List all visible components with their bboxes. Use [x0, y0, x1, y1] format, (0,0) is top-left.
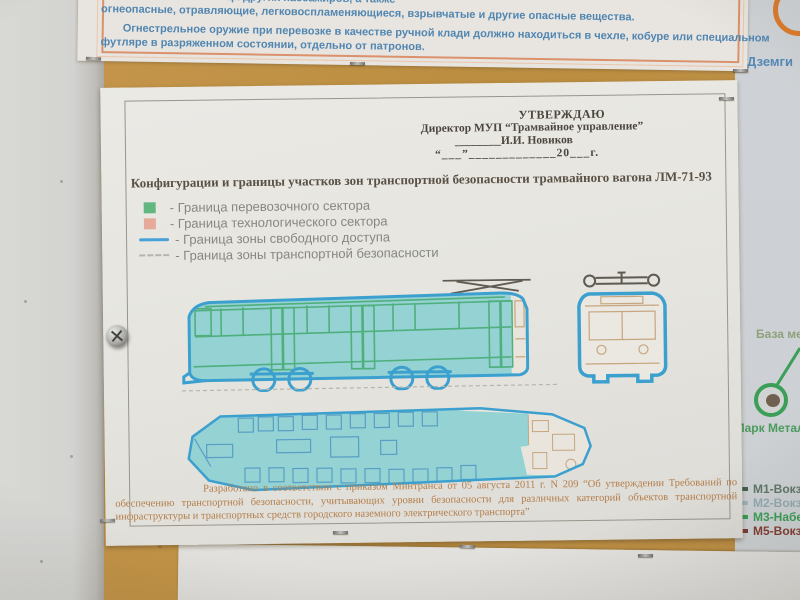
pantograph-icon — [584, 272, 659, 286]
staple — [86, 57, 101, 61]
main-document: УТВЕРЖДАЮ Директор МУП “Трамвайное управ… — [100, 80, 743, 546]
legend-label: - Граница зоны транспортной безопасности — [175, 244, 439, 262]
approval-block: УТВЕРЖДАЮ Директор МУП “Трамвайное управ… — [421, 106, 736, 162]
wall — [0, 0, 104, 600]
legend-label: - Граница зоны свободного доступа — [175, 229, 390, 247]
route-row: М1-Вокзал — [736, 482, 800, 496]
route-row: М2-Вокзал — [736, 496, 800, 510]
map-label-dzemgi: Дземги — [747, 54, 793, 69]
staple — [350, 62, 365, 65]
screw-icon — [106, 325, 128, 347]
salmon-square-icon — [144, 218, 156, 229]
staple — [333, 531, 348, 534]
blue-line-icon — [139, 238, 169, 241]
map-label-base: База мет — [756, 327, 800, 341]
map-route-line — [767, 344, 800, 388]
green-square-icon — [144, 202, 156, 213]
staple — [460, 545, 475, 549]
route-m5-label: М5-Вокзал — [753, 524, 800, 538]
dashed-line-icon — [139, 254, 169, 256]
route-m2-label: М2-Вокзал — [753, 496, 800, 510]
staple — [719, 97, 734, 100]
station-circle-icon — [754, 383, 788, 417]
staple — [638, 554, 653, 557]
tram-side-view-diagram — [175, 278, 564, 393]
route-row: М3-Набереж — [736, 510, 800, 524]
route-row: М5-Вокзал — [736, 524, 800, 538]
notice-board-photo: Дземги База мет Парк Металлу М1-Вокзал М… — [0, 0, 800, 600]
route-m3-label: М3-Набереж — [753, 510, 800, 524]
tram-front-view-diagram — [572, 267, 671, 390]
legend-label: - Граница технологического сектора — [170, 213, 388, 231]
route-circle-icon — [773, 0, 800, 36]
top-document: вещи других пассажиров, а также огнеопас… — [77, 0, 748, 71]
route-m1-label: М1-Вокзал — [753, 482, 800, 496]
legend-label: - Граница перевозочного сектора — [170, 197, 370, 214]
route-legend: М1-Вокзал М2-Вокзал М3-Набереж М5-Вокзал — [736, 482, 800, 538]
zone-legend: - Граница перевозочного сектора - Границ… — [144, 196, 439, 264]
bottom-document — [178, 544, 800, 600]
staple — [100, 519, 115, 523]
map-label-park: Парк Металлу — [736, 421, 800, 435]
tram-map-document: Дземги База мет Парк Металлу М1-Вокзал М… — [735, 0, 800, 600]
staple — [733, 69, 748, 72]
footer-note: Разработано в соответствии с приказом Ми… — [115, 476, 737, 524]
